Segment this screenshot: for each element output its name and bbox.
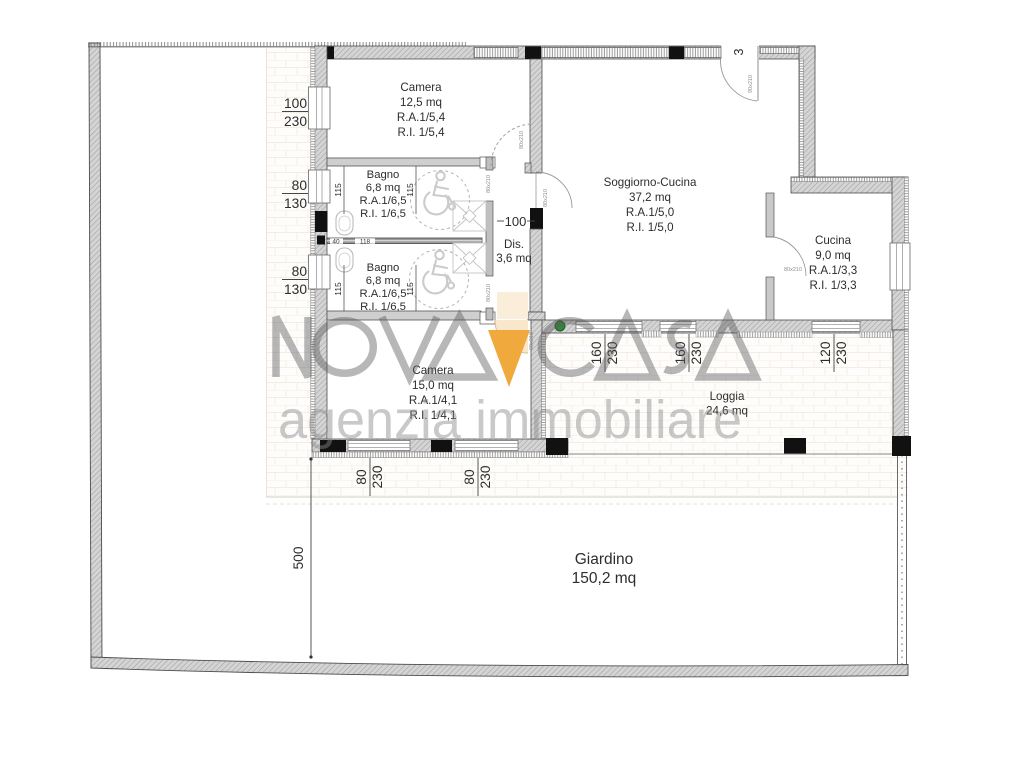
svg-text:80x210: 80x210 — [486, 284, 492, 302]
svg-text:R.I. 1/5,0: R.I. 1/5,0 — [626, 221, 673, 234]
svg-text:R.A.1/6,5: R.A.1/6,5 — [359, 288, 406, 300]
svg-text:R.A.1/5,0: R.A.1/5,0 — [626, 206, 674, 219]
svg-text:9,0 mq: 9,0 mq — [815, 249, 850, 262]
svg-text:150,2 mq: 150,2 mq — [572, 570, 637, 587]
svg-text:12,5 mq: 12,5 mq — [400, 96, 442, 109]
svg-text:R.I. 1/6,5: R.I. 1/6,5 — [360, 301, 406, 313]
svg-text:80: 80 — [292, 178, 308, 193]
svg-text:R.A.1/5,4: R.A.1/5,4 — [397, 111, 446, 124]
svg-text:80x210: 80x210 — [486, 175, 492, 193]
svg-text:230: 230 — [284, 114, 307, 129]
svg-text:118: 118 — [360, 238, 371, 245]
svg-text:3: 3 — [732, 48, 746, 55]
svg-text:R.I. 1/3,3: R.I. 1/3,3 — [809, 279, 856, 292]
svg-text:R.I. 1/6,5: R.I. 1/6,5 — [360, 208, 406, 220]
svg-text:6,8 mq: 6,8 mq — [366, 182, 401, 194]
svg-text:Bagno: Bagno — [367, 169, 400, 181]
svg-text:80: 80 — [292, 264, 308, 279]
svg-text:500: 500 — [291, 546, 306, 569]
svg-text:115: 115 — [333, 183, 343, 197]
svg-text:230: 230 — [478, 465, 493, 488]
svg-text:Soggiorno-Cucina: Soggiorno-Cucina — [604, 176, 697, 189]
svg-text:Dis.: Dis. — [504, 238, 524, 251]
svg-text:37,2 mq: 37,2 mq — [629, 191, 671, 204]
svg-text:6,8 mq: 6,8 mq — [366, 275, 401, 287]
svg-text:100: 100 — [505, 214, 527, 229]
svg-text:90x210: 90x210 — [748, 75, 754, 93]
svg-text:230: 230 — [689, 341, 704, 364]
svg-text:Cucina: Cucina — [815, 234, 852, 247]
svg-text:80x210: 80x210 — [784, 267, 802, 273]
svg-text:130: 130 — [284, 282, 307, 297]
svg-text:agenzia immobiliare: agenzia immobiliare — [278, 390, 742, 450]
svg-text:80x210: 80x210 — [519, 131, 525, 149]
svg-text:Giardino: Giardino — [575, 551, 634, 568]
svg-text:230: 230 — [370, 465, 385, 488]
svg-text:80: 80 — [354, 469, 369, 485]
svg-text:115: 115 — [333, 282, 343, 296]
svg-text:230: 230 — [834, 341, 849, 364]
svg-text:R.A.1/6,5: R.A.1/6,5 — [359, 195, 406, 207]
svg-text:100: 100 — [284, 96, 307, 111]
svg-text:160: 160 — [589, 341, 604, 364]
svg-text:80: 80 — [462, 469, 477, 485]
svg-text:Bagno: Bagno — [367, 262, 400, 274]
svg-text:120: 120 — [818, 341, 833, 364]
svg-text:R.I. 1/5,4: R.I. 1/5,4 — [397, 126, 445, 139]
svg-text:R.A.1/3,3: R.A.1/3,3 — [809, 264, 857, 277]
svg-text:40: 40 — [332, 238, 340, 245]
svg-text:3,6 mq: 3,6 mq — [496, 252, 531, 265]
svg-text:130: 130 — [284, 196, 307, 211]
svg-text:80x210: 80x210 — [543, 189, 549, 207]
svg-text:80x210: 80x210 — [529, 332, 535, 350]
svg-text:Camera: Camera — [400, 81, 442, 94]
